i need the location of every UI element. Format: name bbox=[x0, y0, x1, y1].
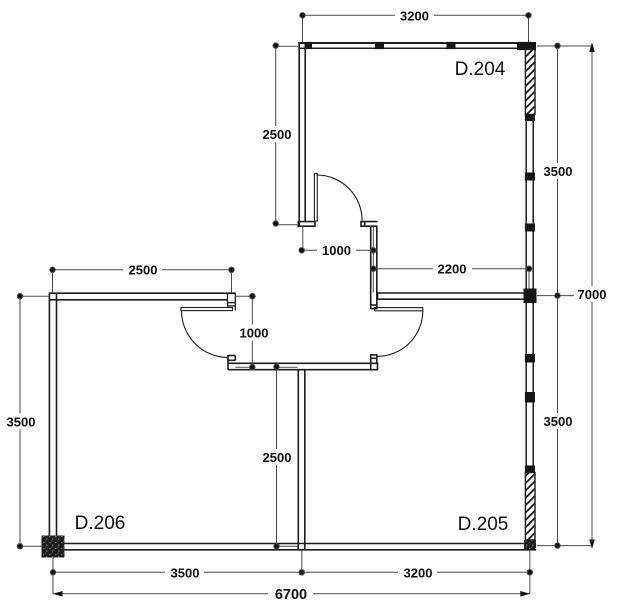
svg-text:3200: 3200 bbox=[400, 8, 429, 23]
svg-text:D.204: D.204 bbox=[455, 59, 506, 80]
svg-text:D.205: D.205 bbox=[458, 514, 509, 535]
svg-text:7000: 7000 bbox=[578, 287, 607, 302]
svg-text:2500: 2500 bbox=[263, 450, 292, 465]
svg-text:3500: 3500 bbox=[544, 414, 573, 429]
svg-text:3500: 3500 bbox=[7, 415, 36, 430]
svg-text:1000: 1000 bbox=[322, 243, 351, 258]
svg-text:2200: 2200 bbox=[438, 262, 467, 277]
svg-text:3500: 3500 bbox=[544, 164, 573, 179]
svg-text:D.206: D.206 bbox=[75, 513, 126, 534]
svg-text:3500: 3500 bbox=[171, 565, 200, 580]
svg-text:2500: 2500 bbox=[263, 127, 292, 142]
svg-text:2500: 2500 bbox=[129, 263, 158, 278]
svg-text:3200: 3200 bbox=[404, 565, 433, 580]
svg-text:1000: 1000 bbox=[240, 325, 269, 340]
svg-text:6700: 6700 bbox=[275, 587, 307, 603]
